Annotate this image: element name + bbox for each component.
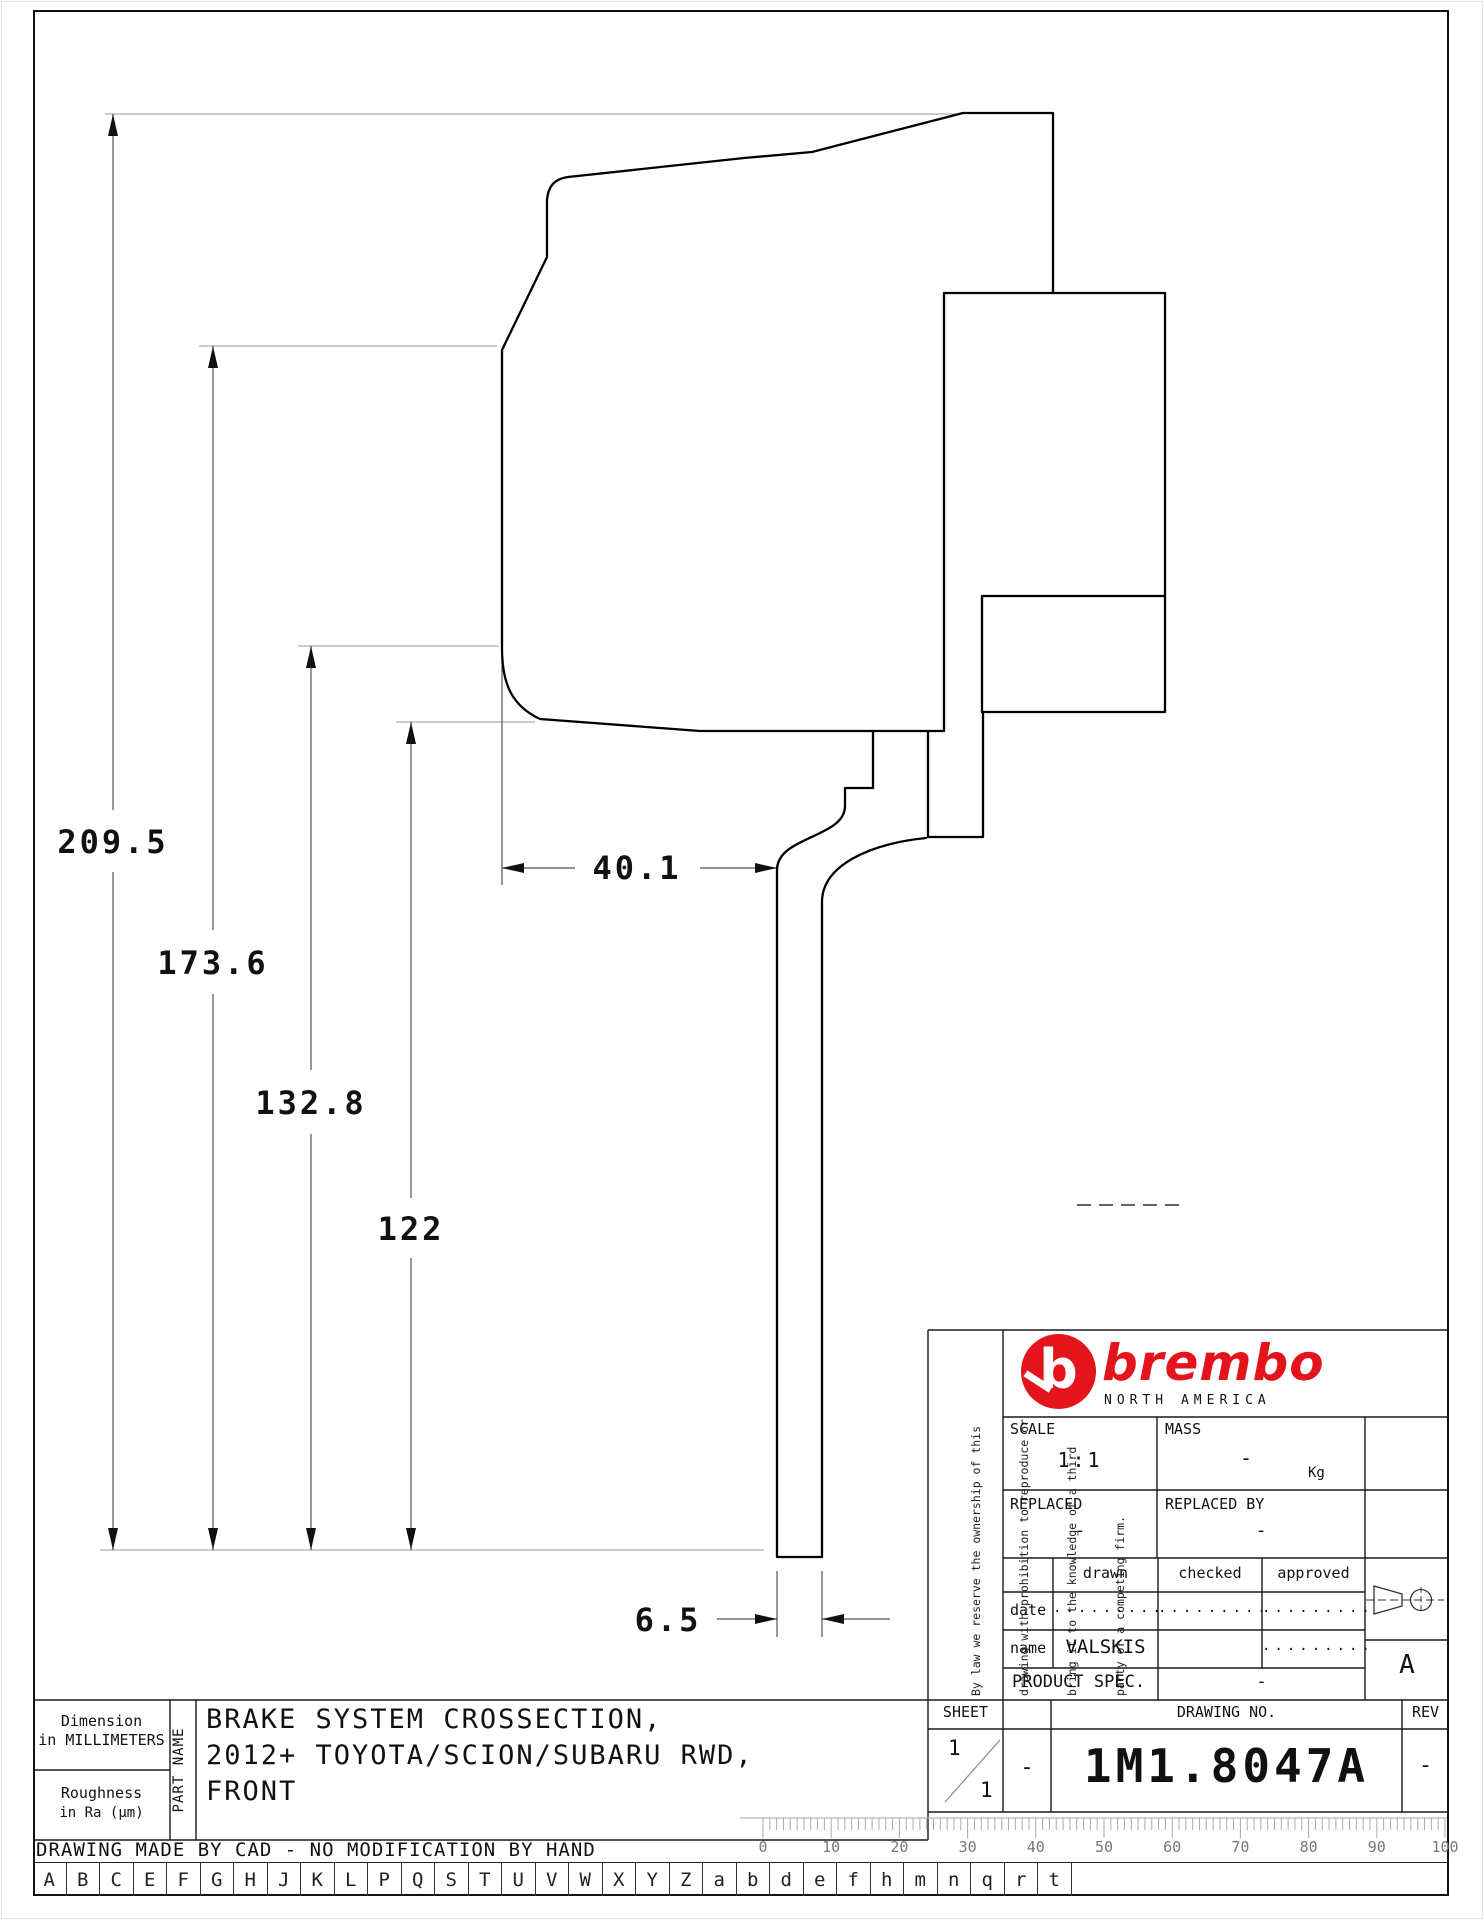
ruler-label: 50 xyxy=(1095,1838,1113,1856)
ruler-scale: 0102030405060708090100 xyxy=(740,1818,1459,1856)
date-drawn-dots: ......... xyxy=(1053,1601,1158,1616)
letter-cell: U xyxy=(502,1863,536,1896)
scale-value: 1:1 xyxy=(1003,1450,1157,1471)
letter-cell: r xyxy=(1005,1863,1039,1896)
disclaimer-line: By law we reserve the ownership of this xyxy=(968,1334,984,1696)
drawing-no-label: DRAWING NO. xyxy=(1051,1705,1402,1721)
rev-value: - xyxy=(1402,1754,1449,1777)
profile-left-body xyxy=(502,113,963,731)
letter-cell: b xyxy=(737,1863,771,1896)
dimension-unit-note-1: Dimension xyxy=(33,1714,170,1730)
dimension-unit-note-2: in MILLIMETERS xyxy=(33,1733,170,1749)
projection-letter: A xyxy=(1365,1652,1449,1679)
letter-cell: d xyxy=(770,1863,804,1896)
rev-label: REV xyxy=(1402,1705,1449,1721)
sheet-total: 1 xyxy=(980,1779,993,1801)
date-approved-dots: ......... xyxy=(1262,1601,1365,1616)
dim-label-mid: 132.8 xyxy=(255,1084,366,1122)
letter-cell: E xyxy=(134,1863,168,1896)
profile-top-edge xyxy=(963,113,1053,293)
cad-note: DRAWING MADE BY CAD - NO MODIFICATION BY… xyxy=(36,1841,596,1861)
ruler-label: 90 xyxy=(1368,1838,1386,1856)
date-row-label: date xyxy=(1010,1603,1046,1619)
letter-cell: B xyxy=(67,1863,101,1896)
dimension-lines xyxy=(113,114,890,1637)
letter-cell: P xyxy=(368,1863,402,1896)
extension-thickness xyxy=(777,1571,822,1637)
roughness-note-2: in Ra (µm) xyxy=(33,1806,170,1821)
part-name-label: PART NAME xyxy=(172,1702,187,1838)
drawing-number: 1M1.8047A xyxy=(1051,1742,1402,1790)
part-title-line-1: BRAKE SYSTEM CROSSECTION, xyxy=(206,1706,662,1734)
letter-cell: a xyxy=(703,1863,737,1896)
profile-hat xyxy=(928,293,1165,837)
mass-label: MASS xyxy=(1165,1422,1201,1438)
brembo-logo-icon: b xyxy=(1021,1334,1096,1409)
ruler-label: 40 xyxy=(1027,1838,1045,1856)
letter-cell: Z xyxy=(670,1863,704,1896)
sheet-dash: - xyxy=(1003,1756,1051,1779)
sheet-label: SHEET xyxy=(928,1705,1003,1721)
ruler-label: 0 xyxy=(758,1838,767,1856)
name-row-label: name xyxy=(1010,1641,1046,1657)
dim-label-overall: 209.5 xyxy=(57,823,168,861)
part-title-line-3: FRONT xyxy=(206,1778,297,1806)
letter-cell: C xyxy=(100,1863,134,1896)
letter-cell: H xyxy=(234,1863,268,1896)
letter-cell: t xyxy=(1038,1863,1072,1896)
letter-cell: S xyxy=(435,1863,469,1896)
profile-hat-inner-edge xyxy=(982,596,1165,712)
ruler-label: 80 xyxy=(1300,1838,1318,1856)
letter-cell: K xyxy=(301,1863,335,1896)
brembo-logo-b: b xyxy=(1021,1338,1096,1401)
product-spec-label: PRODUCT SPEC. xyxy=(1012,1674,1145,1692)
letter-cell: e xyxy=(804,1863,838,1896)
ruler-label: 100 xyxy=(1431,1838,1458,1856)
ownership-disclaimer: By law we reserve the ownership of this … xyxy=(936,1334,1002,1696)
drawing-canvas: 209.5 173.6 132.8 122 40.1 6.5 010203040… xyxy=(0,0,1484,1920)
letter-cell: F xyxy=(167,1863,201,1896)
dim-label-width: 40.1 xyxy=(592,849,681,887)
letter-cell: q xyxy=(971,1863,1005,1896)
ruler-label: 10 xyxy=(822,1838,840,1856)
dim-label-hat-depth: 173.6 xyxy=(157,944,268,982)
letter-cell: J xyxy=(268,1863,302,1896)
part-title-line-2: 2012+ TOYOTA/SCION/SUBARU RWD, xyxy=(206,1742,754,1770)
drawn-by-name: VALSKIS xyxy=(1053,1638,1158,1658)
column-header-approved: approved xyxy=(1262,1566,1365,1582)
cad-sheet: { "drawing": { "dim_overall": "209.5", "… xyxy=(0,0,1484,1920)
dim-label-thickness: 6.5 xyxy=(635,1601,702,1639)
brand-subtitle: NORTH AMERICA xyxy=(1104,1394,1271,1408)
profile-leg xyxy=(777,732,926,1557)
extension-lines xyxy=(100,114,958,1550)
letter-cell: L xyxy=(335,1863,369,1896)
product-spec-value: - xyxy=(1158,1674,1365,1692)
ruler-label: 30 xyxy=(959,1838,977,1856)
letter-cell: Q xyxy=(402,1863,436,1896)
column-header-drawn: drawn xyxy=(1053,1566,1158,1582)
letter-cell: X xyxy=(603,1863,637,1896)
ruler-label: 60 xyxy=(1163,1838,1181,1856)
letter-cell: G xyxy=(201,1863,235,1896)
brand-wordmark: brembo xyxy=(1102,1334,1325,1392)
date-checked-dots: ......... xyxy=(1158,1601,1262,1616)
replaced-value: - xyxy=(1003,1522,1157,1541)
dim-label-inner: 122 xyxy=(378,1210,445,1248)
letter-cell: Y xyxy=(636,1863,670,1896)
replaced-by-label: REPLACED BY xyxy=(1165,1497,1264,1513)
scale-label: SCALE xyxy=(1010,1422,1055,1438)
replaced-label: REPLACED xyxy=(1010,1497,1082,1513)
column-header-checked: checked xyxy=(1158,1566,1262,1582)
mass-unit: Kg xyxy=(1308,1466,1325,1481)
name-approved-dots: ......... xyxy=(1262,1639,1365,1654)
sheet-number: 1 xyxy=(948,1737,961,1759)
letter-cell: n xyxy=(938,1863,972,1896)
letters-row: ABCEFGHJKLPQSTUVWXYZabdefhmnqrt xyxy=(33,1862,1449,1896)
replaced-by-value: - xyxy=(1157,1522,1365,1541)
letter-cell: W xyxy=(569,1863,603,1896)
letter-cell: T xyxy=(469,1863,503,1896)
ruler-label: 70 xyxy=(1231,1838,1249,1856)
letter-cell: f xyxy=(837,1863,871,1896)
letter-cell: h xyxy=(871,1863,905,1896)
dimension-arrows xyxy=(108,114,844,1624)
letter-cell: m xyxy=(904,1863,938,1896)
letter-cell: V xyxy=(536,1863,570,1896)
letter-cell: A xyxy=(33,1863,67,1896)
roughness-note-1: Roughness xyxy=(33,1786,170,1802)
ruler-label: 20 xyxy=(890,1838,908,1856)
projection-symbol-icon xyxy=(1366,1586,1444,1614)
